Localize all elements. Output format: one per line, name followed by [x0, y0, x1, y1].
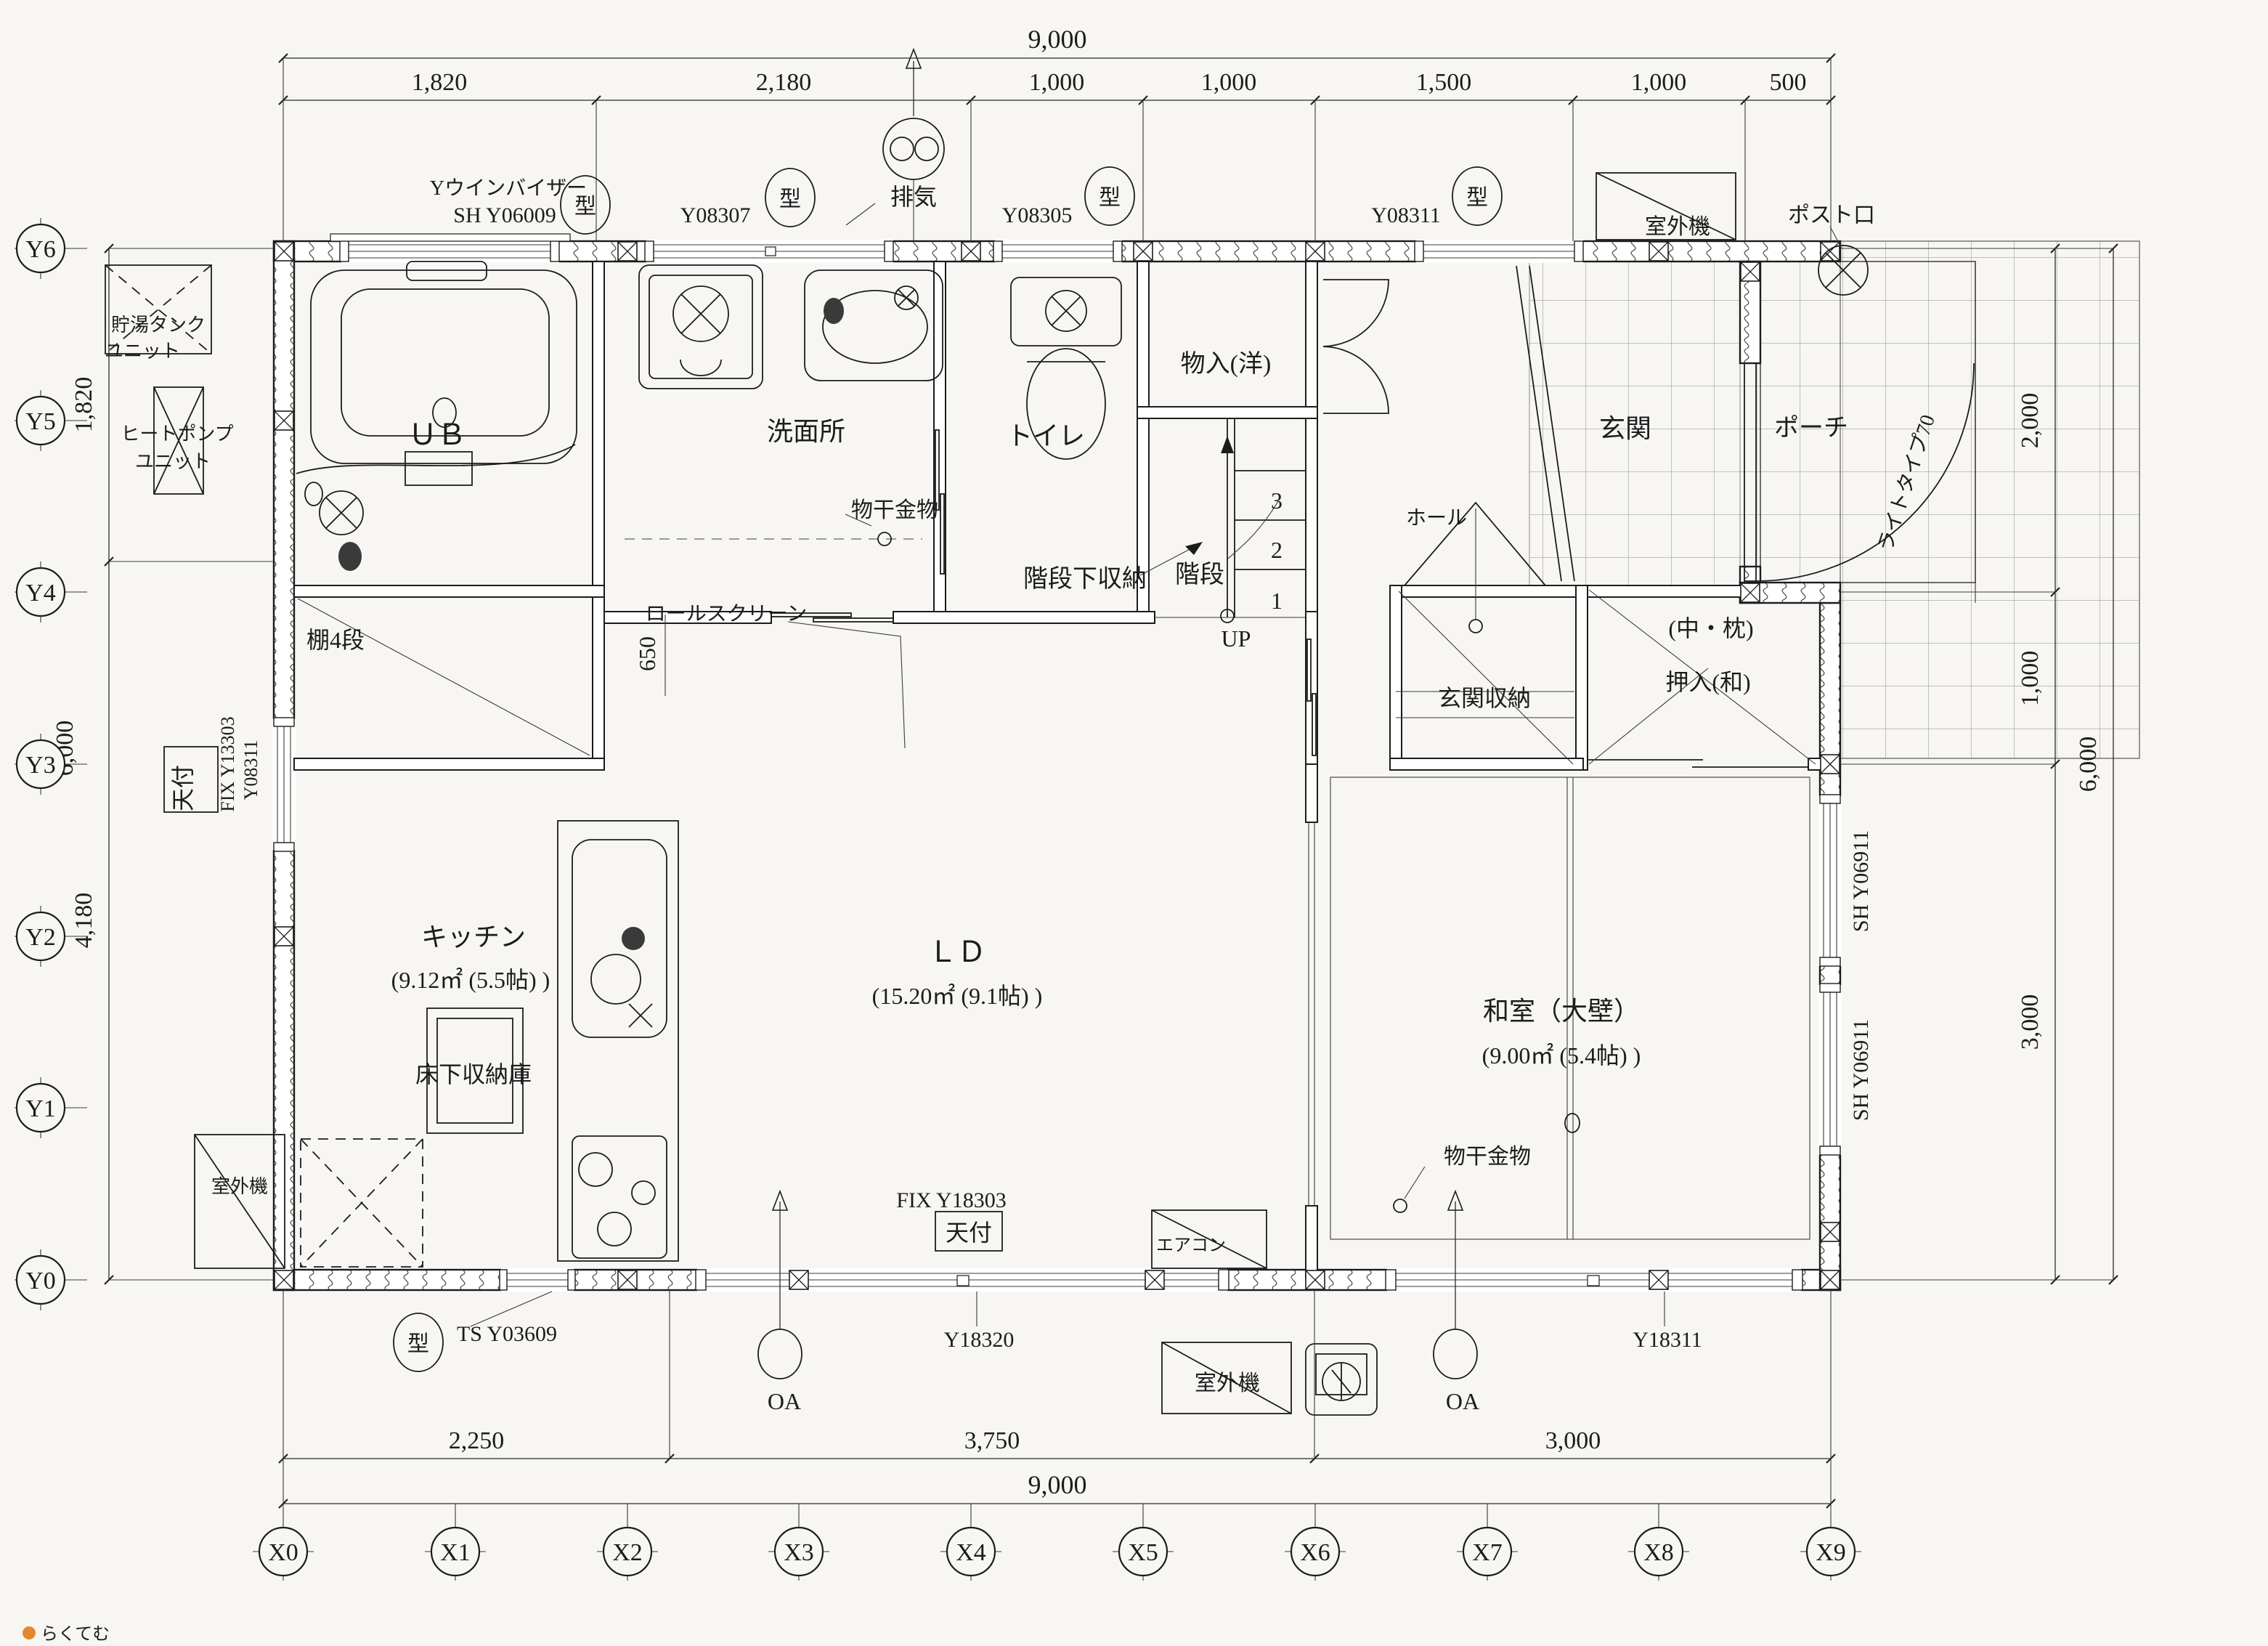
dim-top-seg-5: 1,000 — [1631, 69, 1687, 96]
logo-text: らくてむ — [41, 1625, 110, 1644]
window-y08307 — [645, 240, 893, 263]
dim-bottom-seg-2: 3,000 — [1545, 1427, 1601, 1454]
room-tana: 棚4段 — [306, 627, 365, 653]
outdoor-unit-box-left — [195, 1135, 285, 1268]
label-fix-y18303: FIX Y18303 — [896, 1188, 1006, 1212]
laundry-hardware-right — [1394, 1167, 1425, 1212]
label-sh-y06911-lower: SH Y06911 — [1849, 1019, 1873, 1121]
label-fix-y13303: FIX Y13303 — [217, 716, 238, 811]
room-genkan: 玄関 — [1599, 414, 1651, 443]
label-y08305: Y08305 — [1002, 203, 1073, 227]
window-y08305 — [993, 240, 1122, 263]
dim-bottom-total: 9,000 — [1028, 1470, 1087, 1499]
room-ld: ＬＤ — [928, 936, 986, 968]
room-washitsu: 和室（大壁） — [1483, 997, 1640, 1026]
grid-x3: X3 — [784, 1539, 814, 1566]
label-tank-1: 貯湯タンク — [111, 315, 206, 336]
dim-right-seg-1: 1,000 — [2017, 651, 2044, 707]
staircase — [1221, 418, 1306, 623]
label-roll-screen: ロールスクリーン — [646, 603, 808, 625]
dim-bottom-seg-0: 2,250 — [449, 1427, 505, 1454]
label-kata-1: 型 — [574, 195, 596, 219]
label-y18320: Y18320 — [944, 1328, 1015, 1352]
dim-right-total: 6,000 — [2075, 737, 2102, 792]
room-kaidan-shita: 階段下収納 — [1023, 565, 1147, 593]
room-kitchen-area: (9.12㎡ (5.5帖) ) — [391, 967, 550, 993]
window-y18311 — [1386, 1268, 1802, 1292]
label-oa-left: OA — [768, 1388, 801, 1414]
kitchen-counter — [558, 821, 678, 1261]
grid-x6: X6 — [1300, 1539, 1330, 1566]
room-kitchen: キッチン — [421, 923, 526, 952]
dim-right-seg-0: 2,000 — [2017, 393, 2044, 449]
label-y08311-n: Y08311 — [1371, 203, 1441, 227]
stair-up: UP — [1222, 625, 1251, 652]
dim-top-seg-0: 1,820 — [412, 69, 468, 96]
room-washitsu-area: (9.00㎡ (5.4帖) ) — [1482, 1042, 1641, 1069]
label-visor: Yウインバイザー — [430, 177, 587, 200]
label-y08311-west: Y08311 — [240, 740, 261, 800]
dim-left-seg-0: 1,820 — [70, 377, 97, 433]
bathtub — [296, 262, 577, 571]
dim-bottom-seg-1: 3,750 — [964, 1427, 1020, 1454]
logo-dot-icon — [23, 1626, 36, 1639]
grid-x9: X9 — [1816, 1539, 1846, 1566]
label-sh-y06911-upper: SH Y06911 — [1849, 830, 1873, 932]
room-senmenjo: 洗面所 — [767, 417, 845, 446]
grid-y0: Y0 — [25, 1268, 56, 1294]
grid-x8: X8 — [1643, 1539, 1674, 1566]
grid-y5: Y5 — [25, 408, 56, 435]
label-ts-y03609: TS Y03609 — [457, 1322, 557, 1346]
label-tenbari-south: 天付 — [946, 1220, 992, 1246]
room-oshiire: 押入(和) — [1665, 669, 1750, 695]
exhaust-fan — [883, 49, 944, 241]
label-aircon: エアコン — [1156, 1236, 1226, 1255]
label-kata-5: 型 — [407, 1332, 429, 1356]
wash-basin — [805, 270, 943, 381]
closet-double-doors — [1323, 280, 1389, 413]
room-genkan-shuno: 玄関収納 — [1438, 685, 1531, 711]
washing-machine-pan — [639, 265, 763, 389]
watermark-logo: らくてむ — [23, 1625, 110, 1644]
label-outdoor-top: 室外機 — [1645, 215, 1710, 239]
label-tenbari-west: 天付 — [170, 765, 196, 811]
dim-top-seg-3: 1,000 — [1201, 69, 1257, 96]
label-outdoor-left: 室外機 — [211, 1176, 268, 1197]
label-heatpump-1: ヒートポンプ — [121, 423, 233, 445]
room-oshiire-note: (中・枕) — [1668, 615, 1753, 641]
dim-right-seg-2: 3,000 — [2017, 994, 2044, 1050]
room-ub: ＵＢ — [408, 418, 466, 451]
grid-x7: X7 — [1472, 1539, 1503, 1566]
window-sh-y06911-lower — [1818, 984, 1842, 1155]
dim-left-seg-1: 4,180 — [70, 893, 97, 949]
grid-x4: X4 — [956, 1539, 986, 1566]
label-kata-2: 型 — [779, 187, 801, 211]
grid-y6: Y6 — [25, 236, 56, 263]
dashed-utility-area — [301, 1139, 423, 1267]
grid-y1: Y1 — [25, 1095, 56, 1122]
floor-plan-sheet: 9,000 1,820 2,180 1,000 1,000 1,500 1,00… — [0, 0, 2268, 1646]
tana-shelf-diagonal — [298, 599, 590, 755]
label-y18311: Y18311 — [1633, 1328, 1702, 1352]
grid-y3: Y3 — [25, 752, 56, 779]
label-oa-right: OA — [1446, 1388, 1479, 1414]
dim-top-seg-4: 1,500 — [1416, 69, 1472, 96]
label-kata-3: 型 — [1099, 186, 1121, 210]
grid-x5: X5 — [1128, 1539, 1158, 1566]
stair-num-1: 1 — [1271, 588, 1283, 614]
grid-x2: X2 — [612, 1539, 643, 1566]
dim-top-seg-6: 500 — [1770, 69, 1807, 96]
grid-x0: X0 — [268, 1539, 298, 1566]
dim-stair-width: 650 — [634, 636, 660, 671]
window-ts-y03609 — [500, 1268, 575, 1292]
dim-top-total: 9,000 — [1028, 25, 1087, 54]
room-porch: ポーチ — [1774, 414, 1848, 442]
window-sh-y06911-upper — [1818, 795, 1842, 966]
dim-top-seg-1: 2,180 — [756, 69, 812, 96]
room-mono-iri: 物入(洋) — [1181, 350, 1272, 378]
room-ld-area: (15.20㎡ (9.1帖) ) — [872, 983, 1043, 1009]
label-tank-2: ユニット — [105, 341, 180, 362]
label-sh-y06009: SH Y06009 — [453, 203, 556, 227]
label-exhaust: 排気 — [890, 184, 937, 210]
room-hall: ホール — [1406, 507, 1467, 530]
label-monohoshi-right: 物干金物 — [1444, 1145, 1531, 1169]
label-monohoshi-left: 物干金物 — [851, 498, 938, 522]
label-post-slot: ポスト口 — [1788, 203, 1875, 227]
room-kaidan: 階段 — [1175, 561, 1224, 588]
grid-y4: Y4 — [25, 580, 56, 607]
stair-num-2: 2 — [1271, 537, 1283, 563]
label-outdoor-south: 室外機 — [1195, 1371, 1260, 1395]
grid-y2: Y2 — [25, 924, 56, 951]
label-y08307: Y08307 — [680, 203, 751, 227]
room-yukashita: 床下収納庫 — [415, 1061, 532, 1087]
grid-x1: X1 — [440, 1539, 471, 1566]
dim-top-seg-2: 1,000 — [1029, 69, 1085, 96]
floor-plan-canvas: 9,000 1,820 2,180 1,000 1,000 1,500 1,00… — [0, 0, 2268, 1646]
window-y08311-north — [1415, 240, 1583, 263]
room-toilet: トイレ — [1007, 421, 1085, 450]
window-fix-y13303 — [272, 718, 296, 851]
stair-num-3: 3 — [1271, 487, 1283, 514]
label-heatpump-2: ユニット — [135, 451, 211, 472]
label-kata-4: 型 — [1466, 186, 1488, 210]
window-sh-y06009 — [330, 234, 570, 263]
